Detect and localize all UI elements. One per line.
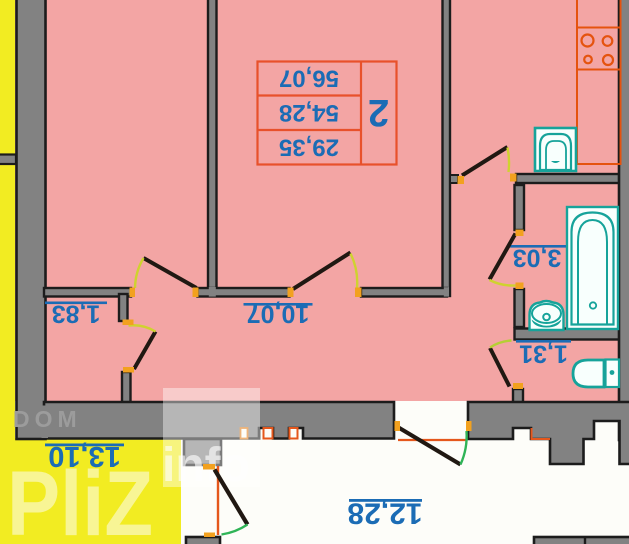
svg-text:54,28: 54,28 — [279, 99, 339, 126]
svg-text:1,31: 1,31 — [519, 340, 568, 368]
svg-text:2: 2 — [368, 91, 389, 133]
svg-text:3,03: 3,03 — [513, 244, 562, 272]
svg-text:29,35: 29,35 — [279, 134, 339, 161]
svg-text:12,28: 12,28 — [347, 497, 422, 530]
svg-text:1,83: 1,83 — [52, 300, 101, 328]
svg-text:DOM: DOM — [13, 406, 82, 432]
svg-text:13,10: 13,10 — [48, 440, 121, 472]
svg-text:56,07: 56,07 — [279, 65, 339, 92]
svg-text:10,07: 10,07 — [247, 300, 310, 328]
